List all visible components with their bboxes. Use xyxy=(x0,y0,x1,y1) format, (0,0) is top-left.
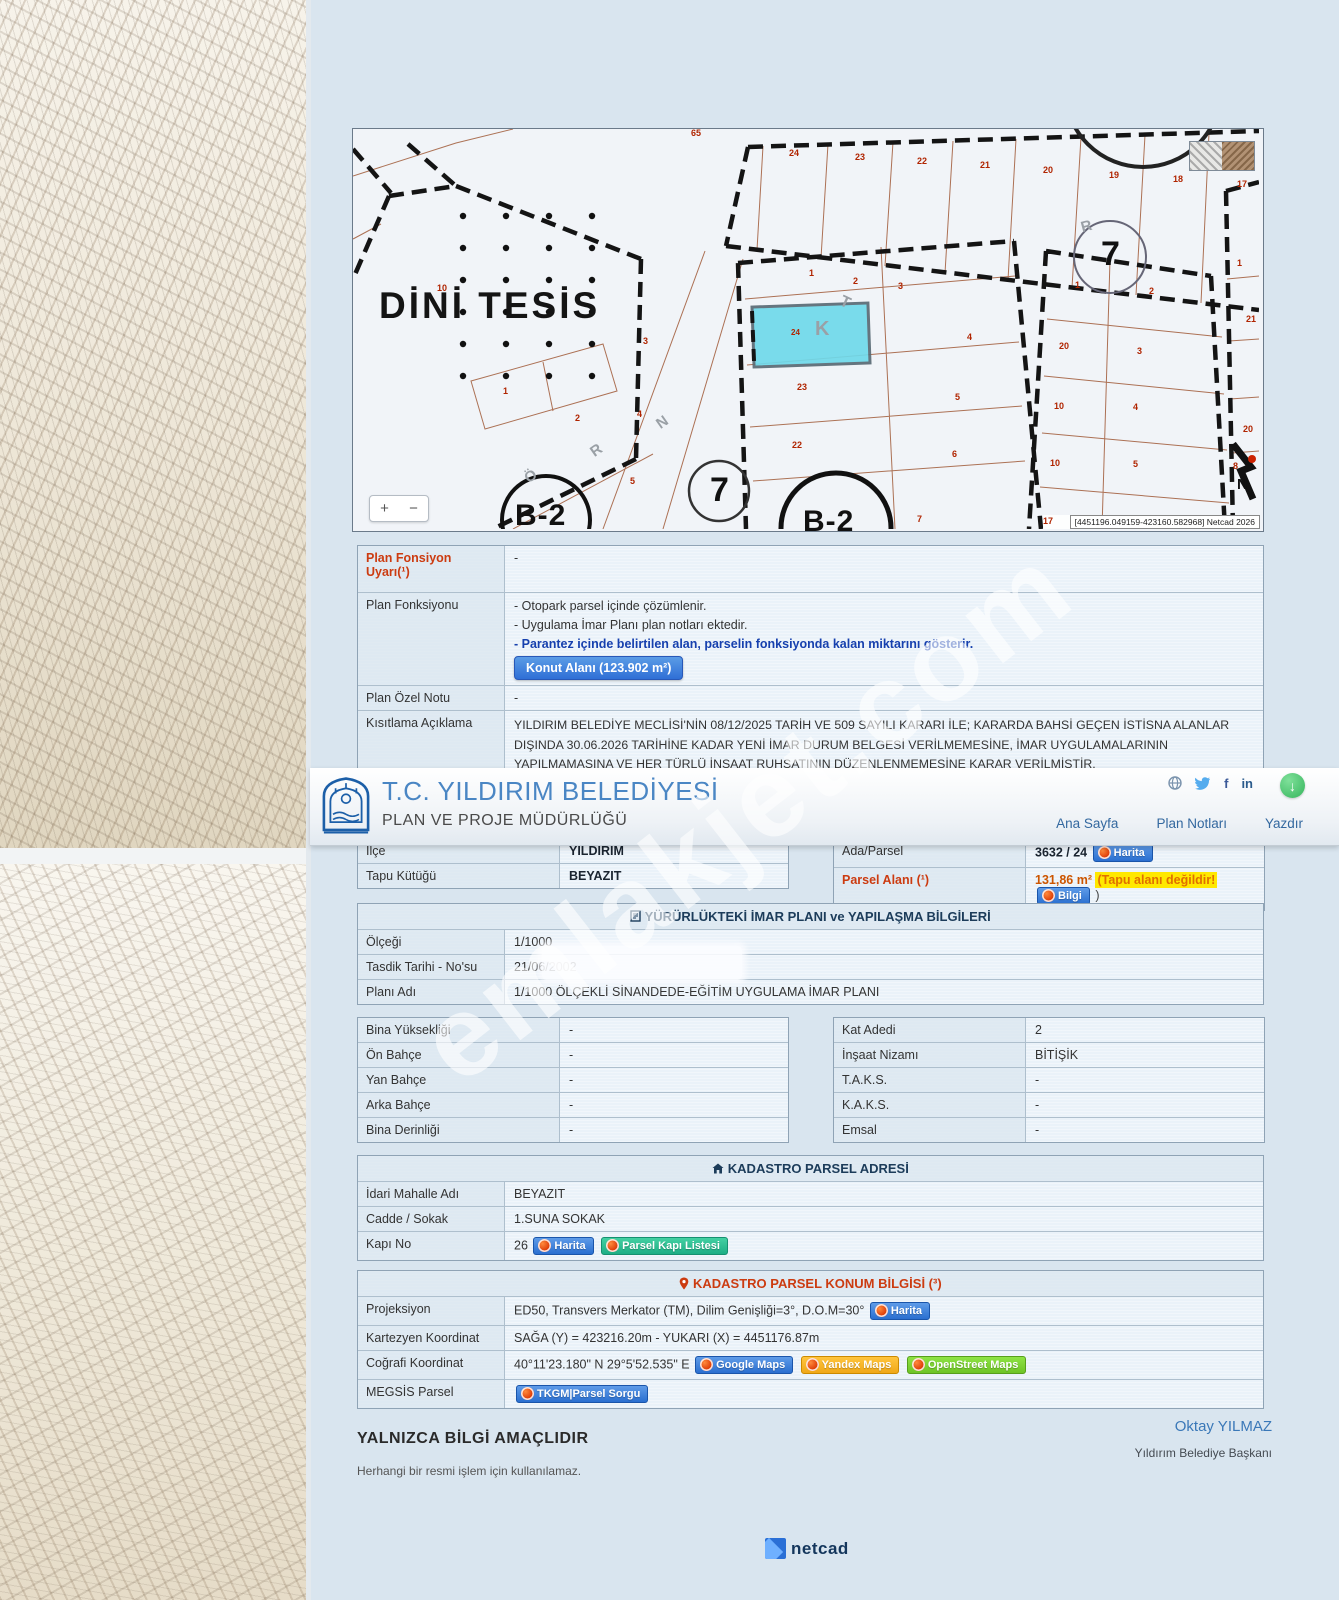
plan-function-line: - Otopark parsel içinde çözümlenir. xyxy=(514,599,1254,613)
row-value: 26 Harita Parsel Kapı Listesi xyxy=(505,1232,1263,1260)
row-label: Kartezyen Koordinat xyxy=(358,1326,505,1350)
row-label: Emsal xyxy=(834,1118,1026,1142)
paren-close: ) xyxy=(1095,888,1099,902)
row-value: - xyxy=(560,1093,788,1117)
map-label: 4 xyxy=(1133,403,1138,412)
location-pin-icon xyxy=(679,1277,689,1290)
row-label: Ön Bahçe xyxy=(358,1043,560,1067)
konut-alani-button[interactable]: Konut Alanı (123.902 m²) xyxy=(514,656,683,680)
section-header: KADASTRO PARSEL ADRESİ xyxy=(358,1156,1263,1182)
map-label: B-2 xyxy=(803,507,854,532)
row-value: - Otopark parsel içinde çözümlenir. - Uy… xyxy=(505,593,1263,685)
map-label: 24 xyxy=(789,149,799,158)
zoom-out-button[interactable]: − xyxy=(403,500,424,517)
sidebar-photo-strip xyxy=(0,0,311,1600)
row-value: - xyxy=(560,1068,788,1092)
linkedin-icon[interactable]: in xyxy=(1241,777,1253,790)
google-maps-button[interactable]: Google Maps xyxy=(695,1356,793,1374)
plan-function-note: - Parantez içinde belirtilen alan, parse… xyxy=(514,637,1254,651)
clipboard-icon xyxy=(630,910,641,922)
row-label: Tasdik Tarihi - No'su xyxy=(358,955,505,979)
map-label: N xyxy=(1237,477,1248,492)
municipality-logo xyxy=(320,775,372,838)
row-value: BİTİŞİK xyxy=(1026,1043,1264,1067)
openstreet-maps-button[interactable]: OpenStreet Maps xyxy=(907,1356,1026,1374)
plan-function-line: - Uygulama İmar Planı plan notları ekted… xyxy=(514,618,1254,632)
row-value: - xyxy=(560,1018,788,1042)
row-value: 1.SUNA SOKAK xyxy=(505,1207,1263,1231)
map-label: 21 xyxy=(980,161,990,170)
map-label: DİNİ TESİS xyxy=(379,287,600,324)
netcad-marker-icon xyxy=(1098,846,1111,859)
harita-button[interactable]: Harita xyxy=(533,1237,593,1255)
nav-ana-sayfa[interactable]: Ana Sayfa xyxy=(1056,816,1118,831)
netcad-logo-text: netcad xyxy=(791,1539,849,1559)
netcad-marker-icon xyxy=(700,1358,713,1371)
site-header: T.C. YILDIRIM BELEDİYESİ PLAN VE PROJE M… xyxy=(310,768,1339,846)
row-label: Kapı No xyxy=(358,1232,505,1260)
row-value: - xyxy=(560,1043,788,1067)
map-label: 6 xyxy=(952,450,957,459)
map-label: 24 xyxy=(791,329,800,337)
row-label: Plan Fonksiyonu xyxy=(358,593,505,685)
map-label: 7 xyxy=(917,515,922,524)
netcad-marker-icon xyxy=(521,1387,534,1400)
imar-plani-table: YÜRÜRLÜKTEKİ İMAR PLANI ve YAPILAŞMA BİL… xyxy=(357,903,1264,1005)
tapu-warning: (Tapu alanı değildir! xyxy=(1095,872,1217,888)
row-value: ED50, Transvers Merkator (TM), Dilim Gen… xyxy=(505,1297,1263,1325)
redaction-blur xyxy=(542,946,742,980)
table-row: Tapu Kütüğü BEYAZIT xyxy=(358,864,788,888)
section-header: KADASTRO PARSEL KONUM BİLGİSİ (³) xyxy=(358,1271,1263,1297)
cadastral-map[interactable]: 6524232221201918171012123345244235226712… xyxy=(352,128,1264,532)
zoom-in-button[interactable]: + xyxy=(374,500,395,517)
parsel-alani-value: 131,86 m² xyxy=(1035,873,1092,887)
map-label: 4 xyxy=(637,410,642,419)
photo-separator xyxy=(0,848,306,864)
home-icon xyxy=(712,1163,724,1174)
map-label: 18 xyxy=(1173,175,1183,184)
row-value: 40°11'23.180" N 29°5'52.535" E Google Ma… xyxy=(505,1351,1263,1379)
map-label: 2 xyxy=(853,277,858,286)
row-label: Yan Bahçe xyxy=(358,1068,560,1092)
map-label: 10 xyxy=(1050,459,1060,468)
map-label-layer: 6524232221201918171012123345244235226712… xyxy=(353,129,1259,529)
location-table-right: Ada/Parsel 3632 / 24 Harita Parsel Alanı… xyxy=(833,838,1265,911)
map-label: 5 xyxy=(955,393,960,402)
row-value: 2 xyxy=(1026,1018,1264,1042)
map-label: 2 xyxy=(1149,287,1154,296)
globe-icon[interactable] xyxy=(1168,776,1182,790)
map-label: 19 xyxy=(1109,171,1119,180)
row-label: Cadde / Sokak xyxy=(358,1207,505,1231)
row-label: İdari Mahalle Adı xyxy=(358,1182,505,1206)
map-label: 1 xyxy=(809,269,814,278)
netcad-marker-icon xyxy=(912,1358,925,1371)
twitter-icon[interactable] xyxy=(1195,777,1211,790)
map-label: R xyxy=(588,441,605,460)
kartezyen-value: SAĞA (Y) = 423216.20m - YUKARI (X) = 445… xyxy=(505,1326,1263,1350)
row-value: - xyxy=(1026,1093,1264,1117)
map-label: 7 xyxy=(1101,237,1120,271)
row-value: BEYAZIT xyxy=(560,864,788,888)
facebook-icon[interactable]: f xyxy=(1224,777,1228,790)
projeksiyon-value: ED50, Transvers Merkator (TM), Dilim Gen… xyxy=(514,1303,864,1317)
row-label: Planı Adı xyxy=(358,980,505,1004)
table-row: Plan Fonksiyonu - Otopark parsel içinde … xyxy=(358,593,1263,686)
map-label: 8 xyxy=(1233,462,1238,471)
document-page: 6524232221201918171012123345244235226712… xyxy=(310,0,1339,1600)
map-label: 22 xyxy=(917,157,927,166)
netcad-marker-icon xyxy=(806,1358,819,1371)
disclaimer-title: YALNIZCA BİLGİ AMAÇLIDIR xyxy=(357,1430,589,1448)
map-label: 2 xyxy=(575,414,580,423)
map-coordinates-readout: [4451196.049159-423160.582968] Netcad 20… xyxy=(1070,515,1260,529)
row-label: Tapu Kütüğü xyxy=(358,864,560,888)
row-label: Coğrafi Koordinat xyxy=(358,1351,505,1379)
row-label: Ölçeği xyxy=(358,930,505,954)
row-value: TKGM|Parsel Sorgu xyxy=(505,1380,1263,1408)
harita-button[interactable]: Harita xyxy=(1093,844,1153,862)
row-value: 1/1000 ÖLÇEKLİ SİNANDEDE-EĞİTİM UYGULAMA… xyxy=(505,980,1263,1004)
table-row: Tasdik Tarihi - No'su 21/06/2002 xyxy=(358,955,1263,980)
konum-table: KADASTRO PARSEL KONUM BİLGİSİ (³) Projek… xyxy=(357,1270,1264,1409)
disclaimer-subtitle: Herhangi bir resmi işlem için kullanılam… xyxy=(357,1464,581,1478)
netcad-logo: netcad xyxy=(765,1538,849,1559)
listing-photo-bottom xyxy=(0,864,306,1600)
map-label: 3 xyxy=(643,337,648,346)
row-label: Plan Özel Notu xyxy=(358,686,505,710)
map-label: 1 xyxy=(1237,259,1242,268)
nav-yazdir[interactable]: Yazdır xyxy=(1265,816,1303,831)
ada-parsel-value: 3632 / 24 xyxy=(1035,845,1087,859)
netcad-marker-icon xyxy=(538,1239,551,1252)
map-label: Ö xyxy=(522,467,540,486)
map-label: 65 xyxy=(691,129,701,138)
row-value: - xyxy=(1026,1068,1264,1092)
page-title: T.C. YILDIRIM BELEDİYESİ xyxy=(382,776,719,807)
yapilasma-table-left: Bina Yüksekliği- Ön Bahçe- Yan Bahçe- Ar… xyxy=(357,1017,789,1143)
row-value: - xyxy=(560,1118,788,1142)
netcad-marker-icon xyxy=(875,1304,888,1317)
netcad-logo-icon xyxy=(765,1538,786,1559)
row-label: Bina Yüksekliği xyxy=(358,1018,560,1042)
netcad-marker-icon xyxy=(606,1239,619,1252)
nav-plan-notlari[interactable]: Plan Notları xyxy=(1156,816,1227,831)
table-row: Ölçeği 1/1000 xyxy=(358,930,1263,955)
row-label: Bina Derinliği xyxy=(358,1118,560,1142)
map-label: 4 xyxy=(967,333,972,342)
header-nav: Ana Sayfa Plan Notları Yazdır xyxy=(1056,816,1303,831)
table-row: Planı Adı 1/1000 ÖLÇEKLİ SİNANDEDE-EĞİTİ… xyxy=(358,980,1263,1004)
map-label: 23 xyxy=(855,153,865,162)
mayor-title: Yıldırım Belediye Başkanı xyxy=(1135,1446,1272,1460)
map-label: K xyxy=(815,319,829,339)
page-subtitle: PLAN VE PROJE MÜDÜRLÜĞÜ xyxy=(382,812,627,830)
section-header: YÜRÜRLÜKTEKİ İMAR PLANI ve YAPILAŞMA BİL… xyxy=(358,904,1263,930)
map-label: 1 xyxy=(503,387,508,396)
harita-button[interactable]: Harita xyxy=(870,1302,930,1320)
map-label: 5 xyxy=(630,477,635,486)
adres-table: KADASTRO PARSEL ADRESİ İdari Mahalle Adı… xyxy=(357,1155,1264,1261)
listing-photo-top xyxy=(0,0,306,848)
plan-info-table: Plan Fonsiyon Uyarı(¹) - Plan Fonksiyonu… xyxy=(357,545,1264,781)
map-label: T xyxy=(837,294,853,313)
map-label: 20 xyxy=(1043,166,1053,175)
tkgm-parsel-sorgu-button[interactable]: TKGM|Parsel Sorgu xyxy=(516,1385,648,1403)
row-label: MEGSİS Parsel xyxy=(358,1380,505,1408)
row-label: Arka Bahçe xyxy=(358,1093,560,1117)
mayor-name: Oktay YILMAZ xyxy=(1175,1418,1272,1435)
map-zoom-control[interactable]: + − xyxy=(369,495,429,522)
table-row: Plan Özel Notu - xyxy=(358,686,1263,711)
yandex-maps-button[interactable]: Yandex Maps xyxy=(801,1356,900,1374)
social-links: f in xyxy=(1168,776,1253,790)
map-label: 1 xyxy=(1075,281,1080,290)
map-label: 17 xyxy=(1237,180,1247,189)
download-button[interactable]: ↓ xyxy=(1280,773,1305,798)
map-label: N xyxy=(654,413,671,432)
map-label: 3 xyxy=(1137,347,1142,356)
map-label: 20 xyxy=(1243,425,1253,434)
yapilasma-table-right: Kat Adedi2 İnşaat NizamıBİTİŞİK T.A.K.S.… xyxy=(833,1017,1265,1143)
netcad-marker-icon xyxy=(1042,889,1055,902)
row-label: T.A.K.S. xyxy=(834,1068,1026,1092)
map-layer-thumbnail[interactable] xyxy=(1189,141,1255,171)
row-label: Kat Adedi xyxy=(834,1018,1026,1042)
map-label: 3 xyxy=(898,282,903,291)
map-label: 17 xyxy=(1043,517,1053,526)
map-label: 7 xyxy=(710,473,729,507)
table-row: Plan Fonsiyon Uyarı(¹) - xyxy=(358,546,1263,593)
row-value: - xyxy=(1026,1118,1264,1142)
row-value: - xyxy=(505,546,1263,592)
row-label: İnşaat Nizamı xyxy=(834,1043,1026,1067)
map-label: R xyxy=(1079,218,1093,235)
map-label: 22 xyxy=(792,441,802,450)
map-label: 20 xyxy=(1059,342,1069,351)
map-label: B-2 xyxy=(515,501,566,531)
kapi-no-value: 26 xyxy=(514,1238,528,1252)
map-label: 21 xyxy=(1246,315,1256,324)
row-value: - xyxy=(505,686,1263,710)
map-label: 10 xyxy=(1054,402,1064,411)
cografi-value: 40°11'23.180" N 29°5'52.535" E xyxy=(514,1357,690,1371)
parsel-kapi-listesi-button[interactable]: Parsel Kapı Listesi xyxy=(601,1237,728,1255)
map-label: 5 xyxy=(1133,460,1138,469)
row-label: Projeksiyon xyxy=(358,1297,505,1325)
map-label: 23 xyxy=(797,383,807,392)
row-label: Plan Fonsiyon Uyarı(¹) xyxy=(358,546,505,592)
row-value: BEYAZIT xyxy=(505,1182,1263,1206)
row-label: K.A.K.S. xyxy=(834,1093,1026,1117)
